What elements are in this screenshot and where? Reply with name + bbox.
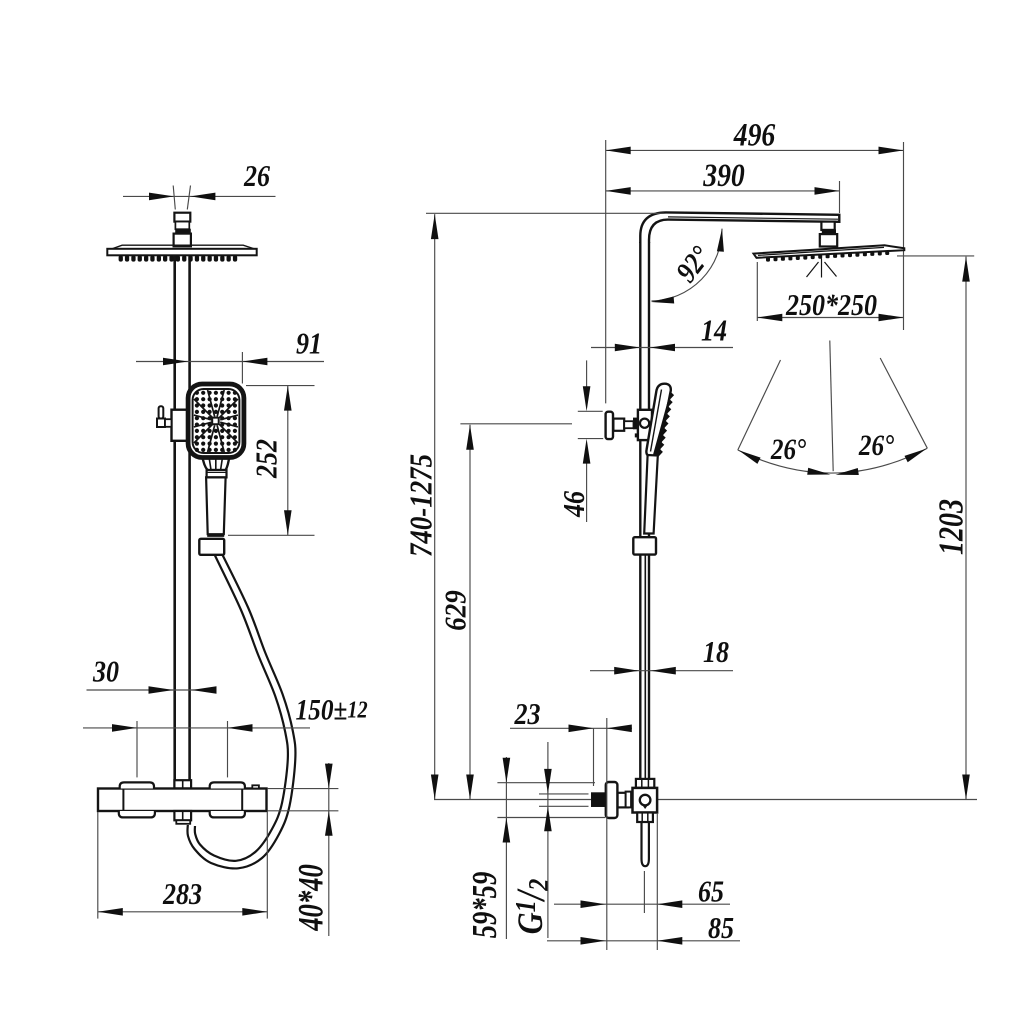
svg-text:252: 252 [249,439,284,479]
svg-text:18: 18 [703,635,729,670]
svg-text:390: 390 [702,157,744,194]
svg-text:91: 91 [296,326,322,361]
svg-text:23: 23 [514,697,541,732]
svg-text:26: 26 [243,159,271,194]
svg-text:629: 629 [439,590,473,631]
svg-text:26°: 26° [770,432,806,466]
svg-text:740-1275: 740-1275 [404,454,439,557]
svg-text:30: 30 [92,654,119,689]
svg-text:26°: 26° [858,428,894,462]
svg-text:1203: 1203 [931,499,970,555]
svg-text:59*59: 59*59 [464,872,503,938]
svg-text:496: 496 [733,116,776,153]
svg-text:150±12: 150±12 [296,694,368,727]
svg-text:14: 14 [701,313,727,348]
svg-text:40*40: 40*40 [291,864,331,932]
svg-text:283: 283 [162,877,202,912]
